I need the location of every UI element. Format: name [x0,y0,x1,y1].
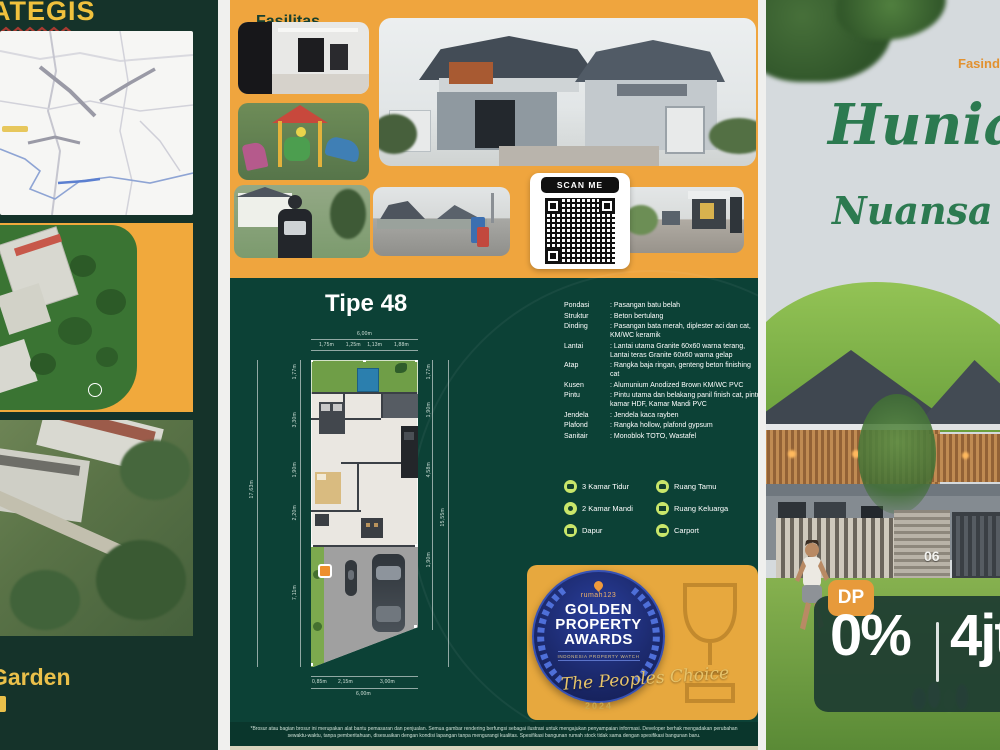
brand-text: Fasind [958,56,1000,71]
main-house-photo [379,18,756,166]
dim-top-segments: 1,75m 1,25m 1,13m 1,88m [311,342,418,348]
amenity-item: 2 Kamar Mandi [564,502,656,515]
qr-code [545,198,615,264]
car-icon [656,524,669,537]
bathroom-zone [383,394,418,418]
dp-value: 0% [830,602,910,669]
amenity-item: Carport [656,524,758,537]
wardrobe [315,514,329,526]
brochure-canvas: STRATEGIS [0,0,1000,750]
left-footer-brand: Garden [0,664,71,691]
street-photo [373,187,510,256]
spec-row: Sanitair: Monoblok TOTO, Wastafel [564,432,758,441]
spec-row: Pintu: Pintu utama dan belakang panil fi… [564,391,758,409]
spec-row: Pondasi: Pasangan batu belah [564,301,758,310]
dp-divider [936,622,939,682]
specs-list: Pondasi: Pasangan batu belah Struktur: B… [564,301,758,442]
kitchen-icon [564,524,577,537]
location-map [0,31,193,215]
divider-right [758,0,766,750]
house-number: 06 [924,548,940,564]
siteplan-image [0,225,137,410]
award-year: 2024 [577,701,621,711]
spec-row: Jendela: Jendela kaca rayben [564,411,758,420]
dim-left-total: 17,63m [249,480,255,498]
award-card: rumah123 GOLDEN PROPERTY AWARDS INDONESI… [527,565,758,720]
tv-icon [656,502,669,515]
dim-right-total: 15,55m [440,508,446,526]
interior-photo [238,22,369,94]
amenity-item: Ruang Tamu [656,480,758,493]
spec-row: Plafond: Rangka hollow, plafond gypsum [564,421,758,430]
spec-row: Atap: Rangka baja ringan, genteng beton … [564,361,758,379]
spec-row: Dinding: Pasangan bata merah, diplester … [564,322,758,340]
tree-foliage [836,0,946,40]
dim-bottom-total: 6,00m [356,691,371,697]
right-panel: Fasind Hunian Nuansa 06 [766,0,1000,750]
courtyard-tree [858,394,936,514]
marker-icon [318,564,332,578]
spec-row: Lantai: Lantai utama Granite 60x60 warna… [564,342,758,360]
type-title: Tipe 48 [325,290,407,318]
strategis-title: STRATEGIS [0,0,96,27]
headline-line1: Hunian [828,92,1000,158]
sofa-icon [656,480,669,493]
middle-panel: Fasilitas [230,0,758,750]
gate-pillar [894,510,950,580]
dim-top-total: 6,00m [311,331,418,337]
trophy-watermark [667,577,753,713]
disclaimer-bar: *Brosur atau bagian brosur ini merupakan… [230,722,758,746]
left-panel: STRATEGIS [0,0,218,750]
disclaimer-text: *Brosur atau bagian brosur ini merupakan… [240,726,748,739]
floorplan-drawing [311,360,418,667]
spec-row: Kusen: Alumunium Anodized Brown KM/WC PV… [564,381,758,390]
gate-photo [622,187,744,253]
compass-icon [88,383,102,397]
bottom-strip [230,746,758,750]
siteplan-card [0,223,193,412]
scan-me-pill: SCAN ME [541,177,619,193]
aerial-photo [0,420,193,636]
amenity-item: Ruang Keluarga [656,502,758,515]
amenity-item: 3 Kamar Tidur [564,480,656,493]
security-photo [234,185,370,258]
spec-row: Struktur: Beton bertulang [564,312,758,321]
dp-card: DP 0% 4jt [814,596,1000,712]
bed-icon [564,480,577,493]
shower-icon [564,502,577,515]
qr-card: SCAN ME [530,173,630,269]
installment-value: 4jt [950,602,1000,669]
divider-left [218,0,230,750]
amenity-item: Dapur [564,524,656,537]
scan-me-label: SCAN ME [557,180,603,190]
amenities: 3 Kamar Tidur 2 Kamar Mandi Dapur Ruang … [564,480,758,546]
dining-set [361,518,383,538]
headline-line2: Nuansa [832,188,993,233]
left-footer-mark [0,696,6,712]
playground-photo [238,103,369,180]
